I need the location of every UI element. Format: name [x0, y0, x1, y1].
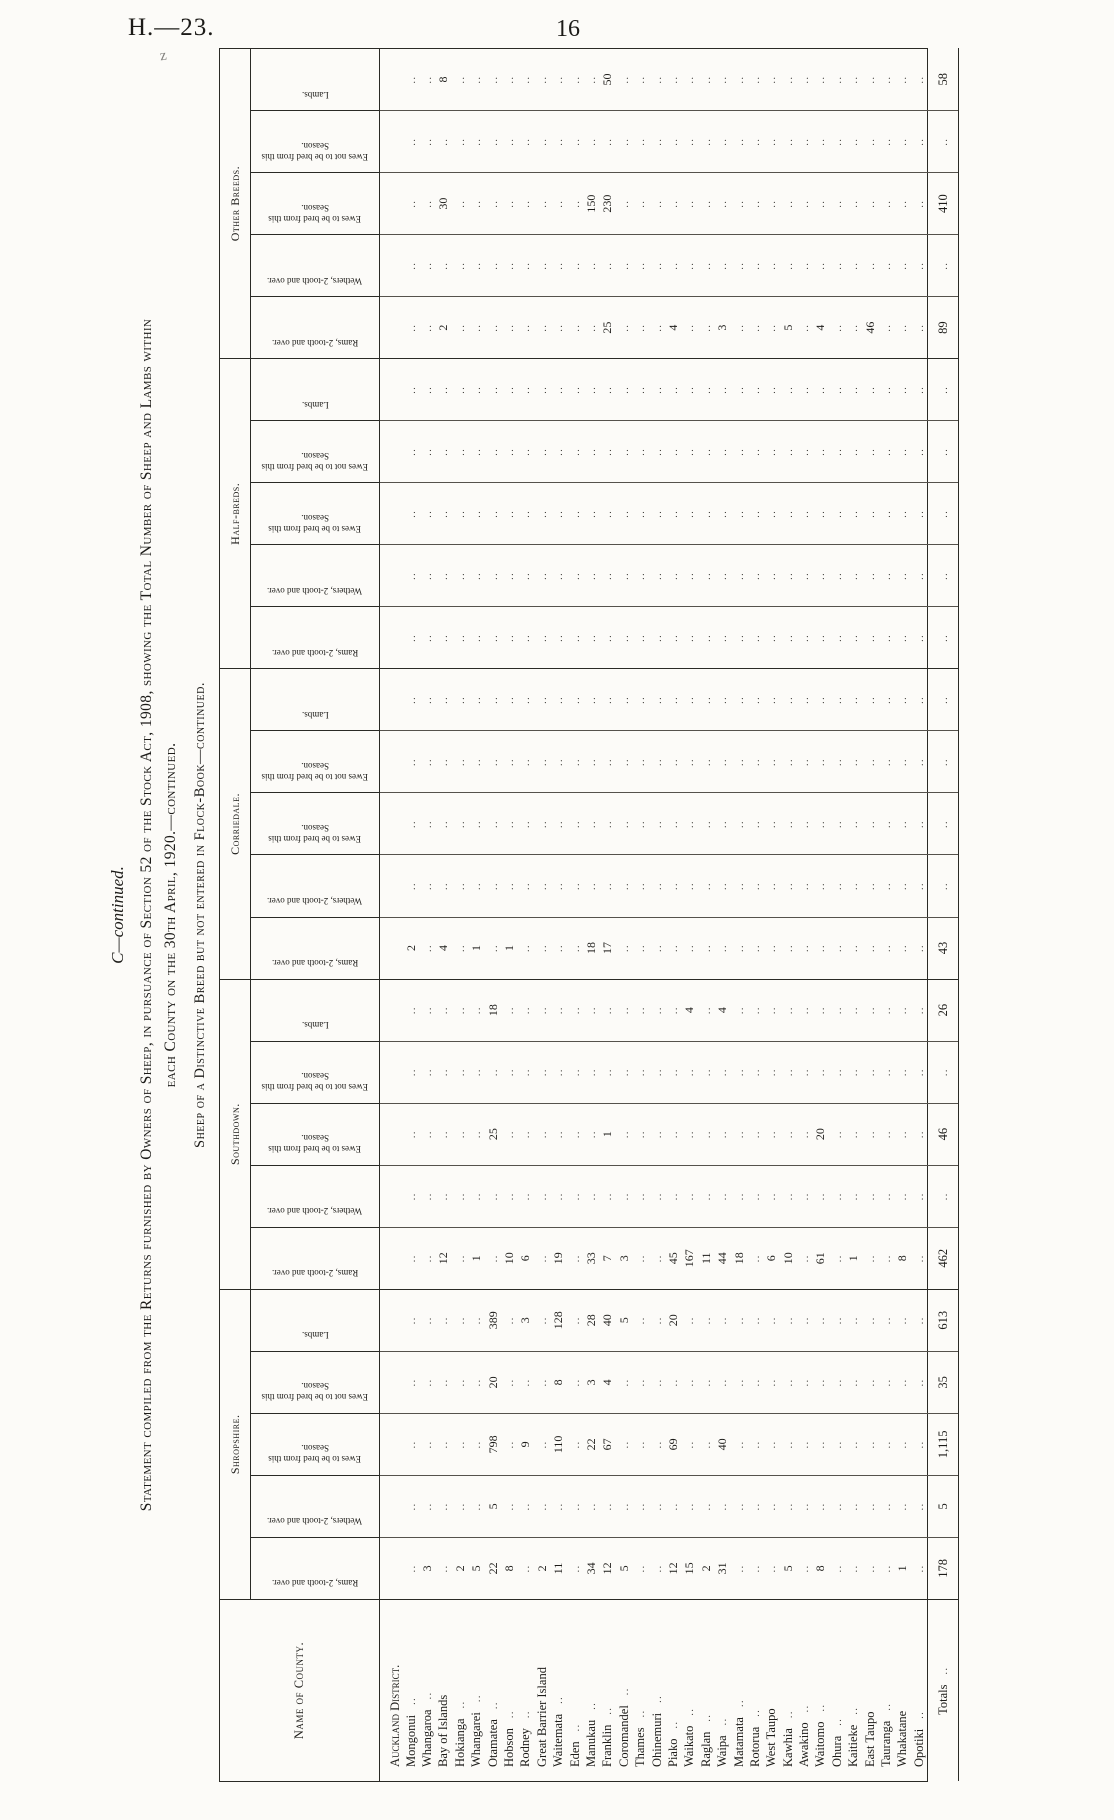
empty-cell: ..: [649, 607, 665, 669]
empty-cell: ..: [747, 979, 763, 1041]
empty-cell: ..: [403, 1413, 419, 1475]
empty-cell: ..: [731, 917, 747, 979]
empty-cell: ..: [764, 297, 780, 359]
empty-cell: ..: [895, 359, 911, 421]
rotated-header-text: Wethers, 2-tooth and over.: [267, 866, 362, 906]
empty-cell: ..: [846, 421, 862, 483]
empty-cell: ..: [665, 979, 681, 1041]
empty-cell: ..: [813, 1413, 829, 1475]
empty-cell: ..: [469, 607, 485, 669]
empty-cell: ..: [829, 1475, 845, 1537]
empty-cell: ..: [878, 1413, 894, 1475]
empty-cell: ..: [682, 1475, 698, 1537]
value-cell: 5: [616, 1537, 632, 1599]
empty-cell: ..: [911, 483, 927, 545]
empty-cell: ..: [600, 979, 616, 1041]
empty-cell: ..: [698, 1103, 714, 1165]
empty-cell: ..: [403, 1227, 419, 1289]
leader-dots: ..: [554, 1696, 565, 1714]
empty-cell: ..: [780, 607, 796, 669]
empty-cell: ..: [698, 855, 714, 917]
value-cell: 5: [928, 1475, 959, 1537]
empty-cell: ..: [813, 111, 829, 173]
empty-cell: ..: [632, 1227, 648, 1289]
empty-cell: ..: [796, 1475, 812, 1537]
empty-cell: ..: [714, 235, 730, 297]
empty-cell: ..: [895, 855, 911, 917]
value-cell: 35: [928, 1351, 959, 1413]
leader-dots: ..: [407, 1697, 418, 1715]
empty-cell: ..: [813, 1041, 829, 1103]
empty-cell: ..: [796, 1227, 812, 1289]
leader-dots: ..: [653, 1695, 664, 1713]
empty-cell: ..: [436, 793, 452, 855]
empty-cell: ..: [731, 1041, 747, 1103]
empty-cell: ..: [419, 111, 435, 173]
leader-dots: ..: [472, 1694, 483, 1712]
value-cell: 8: [501, 1537, 517, 1599]
empty-cell: ..: [534, 1227, 550, 1289]
empty-cell: ..: [862, 979, 878, 1041]
empty-cell: ..: [895, 1475, 911, 1537]
empty-cell: ..: [862, 1165, 878, 1227]
leader-dots: ..: [423, 1691, 434, 1709]
empty-cell: ..: [731, 111, 747, 173]
empty-cell: ..: [780, 1041, 796, 1103]
empty-cell: ..: [747, 1103, 763, 1165]
rotated-header-text: Ewes to be bred from this Season.: [255, 184, 375, 224]
empty-cell: ..: [780, 49, 796, 111]
empty-cell: ..: [649, 1165, 665, 1227]
empty-cell: ..: [551, 855, 567, 917]
value-cell: 2: [534, 1537, 550, 1599]
sub-column-header: Rams, 2-tooth and over.: [251, 917, 380, 979]
empty-cell: ..: [567, 1351, 583, 1413]
empty-cell: ..: [796, 1103, 812, 1165]
value-cell: 12: [436, 1227, 452, 1289]
empty-cell: ..: [501, 1413, 517, 1475]
empty-cell: ..: [911, 1165, 927, 1227]
empty-cell: ..: [501, 483, 517, 545]
empty-cell: ..: [600, 235, 616, 297]
empty-cell: ..: [878, 421, 894, 483]
empty-cell: ..: [469, 1413, 485, 1475]
empty-cell: ..: [403, 793, 419, 855]
empty-cell: ..: [698, 421, 714, 483]
empty-cell: ..: [436, 545, 452, 607]
empty-cell: ..: [600, 855, 616, 917]
blank-cell: [380, 297, 404, 359]
empty-cell: ..: [747, 421, 763, 483]
leader-dots: ..: [587, 1702, 598, 1720]
empty-cell: ..: [419, 235, 435, 297]
empty-cell: ..: [583, 49, 599, 111]
empty-cell: ..: [928, 1041, 959, 1103]
empty-cell: ..: [551, 917, 567, 979]
empty-cell: ..: [829, 421, 845, 483]
sub-column-header: Lambs.: [251, 669, 380, 731]
value-cell: 230: [600, 173, 616, 235]
empty-cell: ..: [501, 669, 517, 731]
county-name: Whangarei..: [469, 1599, 485, 1781]
empty-cell: ..: [616, 855, 632, 917]
empty-cell: ..: [436, 979, 452, 1041]
value-cell: 22: [485, 1537, 501, 1599]
empty-cell: ..: [403, 669, 419, 731]
empty-cell: ..: [698, 731, 714, 793]
leader-dots: ..: [915, 1711, 926, 1729]
rotated-header-text: Wethers, 2-tooth and over.: [267, 1176, 362, 1216]
county-name: Waikato..: [682, 1599, 698, 1781]
empty-cell: ..: [665, 793, 681, 855]
empty-cell: ..: [583, 545, 599, 607]
empty-cell: ..: [878, 1041, 894, 1103]
empty-cell: ..: [878, 173, 894, 235]
empty-cell: ..: [862, 1537, 878, 1599]
county-row: Kaitieke............1...................…: [846, 49, 862, 1782]
empty-cell: ..: [747, 1351, 763, 1413]
empty-cell: ..: [419, 483, 435, 545]
empty-cell: ..: [796, 49, 812, 111]
empty-cell: ..: [714, 731, 730, 793]
value-cell: 4: [600, 1351, 616, 1413]
empty-cell: ..: [911, 297, 927, 359]
blank-cell: [380, 1041, 404, 1103]
empty-cell: ..: [747, 731, 763, 793]
empty-cell: ..: [764, 483, 780, 545]
value-cell: 20: [813, 1103, 829, 1165]
county-name: Ohura..: [829, 1599, 845, 1781]
empty-cell: ..: [616, 483, 632, 545]
empty-cell: ..: [731, 545, 747, 607]
empty-cell: ..: [813, 235, 829, 297]
empty-cell: ..: [747, 235, 763, 297]
sub-column-header: Rams, 2-tooth and over.: [251, 607, 380, 669]
county-row: Hobson..8........10........1............…: [501, 49, 517, 1782]
county-row: Hokianga..2.............................…: [452, 49, 468, 1782]
empty-cell: ..: [714, 421, 730, 483]
empty-cell: ..: [419, 173, 435, 235]
rotated-header-text: Lambs.: [302, 680, 329, 720]
blank-cell: [380, 979, 404, 1041]
empty-cell: ..: [878, 855, 894, 917]
empty-cell: ..: [534, 235, 550, 297]
empty-cell: ..: [518, 917, 534, 979]
blank-cell: [380, 855, 404, 917]
empty-cell: ..: [551, 49, 567, 111]
empty-cell: ..: [911, 359, 927, 421]
empty-cell: ..: [698, 979, 714, 1041]
empty-cell: ..: [665, 731, 681, 793]
empty-cell: ..: [846, 1103, 862, 1165]
value-cell: 45: [665, 1227, 681, 1289]
empty-cell: ..: [501, 111, 517, 173]
empty-cell: ..: [567, 297, 583, 359]
empty-cell: ..: [485, 1165, 501, 1227]
value-cell: 1: [895, 1537, 911, 1599]
value-cell: 20: [665, 1289, 681, 1351]
empty-cell: ..: [682, 421, 698, 483]
sub-column-header: Ewes not to be bred from this Season.: [251, 421, 380, 483]
empty-cell: ..: [780, 421, 796, 483]
empty-cell: ..: [583, 731, 599, 793]
empty-cell: ..: [567, 1165, 583, 1227]
empty-cell: ..: [665, 1041, 681, 1103]
empty-cell: ..: [567, 173, 583, 235]
empty-cell: ..: [534, 49, 550, 111]
empty-cell: ..: [846, 49, 862, 111]
empty-cell: ..: [911, 235, 927, 297]
empty-cell: ..: [846, 1289, 862, 1351]
county-name: Opotiki..: [911, 1599, 927, 1781]
empty-cell: ..: [518, 359, 534, 421]
empty-cell: ..: [419, 669, 435, 731]
empty-cell: ..: [780, 917, 796, 979]
empty-cell: ..: [567, 855, 583, 917]
empty-cell: ..: [911, 855, 927, 917]
empty-cell: ..: [764, 979, 780, 1041]
empty-cell: ..: [534, 1103, 550, 1165]
empty-cell: ..: [469, 793, 485, 855]
empty-cell: ..: [452, 235, 468, 297]
empty-cell: ..: [780, 173, 796, 235]
blank-cell: [380, 1289, 404, 1351]
empty-cell: ..: [616, 1103, 632, 1165]
empty-cell: ..: [534, 297, 550, 359]
empty-cell: ..: [436, 1103, 452, 1165]
empty-cell: ..: [829, 979, 845, 1041]
empty-cell: ..: [747, 1537, 763, 1599]
empty-cell: ..: [436, 1413, 452, 1475]
empty-cell: ..: [419, 1289, 435, 1351]
empty-cell: ..: [665, 1103, 681, 1165]
county-row: Ohura...................................…: [829, 49, 845, 1782]
empty-cell: ..: [846, 607, 862, 669]
empty-cell: ..: [534, 483, 550, 545]
empty-cell: ..: [616, 1041, 632, 1103]
empty-cell: ..: [501, 545, 517, 607]
empty-cell: ..: [485, 235, 501, 297]
value-cell: 6: [518, 1227, 534, 1289]
leader-dots: ..: [571, 1723, 582, 1741]
empty-cell: ..: [551, 669, 567, 731]
empty-cell: ..: [878, 359, 894, 421]
empty-cell: ..: [518, 173, 534, 235]
empty-cell: ..: [403, 1041, 419, 1103]
empty-cell: ..: [403, 173, 419, 235]
empty-cell: ..: [862, 49, 878, 111]
county-name: Rodney..: [518, 1599, 534, 1781]
rotated-header-text: Rams, 2-tooth and over.: [272, 618, 358, 658]
county-row: East Taupo..............................…: [862, 49, 878, 1782]
value-cell: 31: [714, 1537, 730, 1599]
empty-cell: ..: [780, 669, 796, 731]
value-cell: 11: [551, 1537, 567, 1599]
empty-cell: ..: [485, 359, 501, 421]
empty-cell: ..: [714, 545, 730, 607]
empty-cell: ..: [911, 1537, 927, 1599]
empty-cell: ..: [419, 1413, 435, 1475]
empty-cell: ..: [796, 793, 812, 855]
empty-cell: ..: [928, 111, 959, 173]
empty-cell: ..: [567, 1413, 583, 1475]
empty-cell: ..: [583, 1165, 599, 1227]
value-cell: 410: [928, 173, 959, 235]
empty-cell: ..: [698, 483, 714, 545]
empty-cell: ..: [747, 1227, 763, 1289]
empty-cell: ..: [534, 1351, 550, 1413]
empty-cell: ..: [829, 1289, 845, 1351]
empty-cell: ..: [534, 1041, 550, 1103]
empty-cell: ..: [665, 49, 681, 111]
empty-cell: ..: [747, 669, 763, 731]
value-cell: 5: [485, 1475, 501, 1537]
blank-cell: [380, 917, 404, 979]
empty-cell: ..: [928, 669, 959, 731]
empty-cell: ..: [436, 111, 452, 173]
empty-cell: ..: [895, 1041, 911, 1103]
empty-cell: ..: [632, 917, 648, 979]
county-row: Waipa..31..40....44......4..............…: [714, 49, 730, 1782]
empty-cell: ..: [829, 917, 845, 979]
empty-cell: ..: [829, 1227, 845, 1289]
empty-cell: ..: [469, 669, 485, 731]
value-cell: 40: [600, 1289, 616, 1351]
empty-cell: ..: [714, 1041, 730, 1103]
value-cell: 46: [928, 1103, 959, 1165]
value-cell: 3: [419, 1537, 435, 1599]
empty-cell: ..: [764, 669, 780, 731]
empty-cell: ..: [764, 1475, 780, 1537]
empty-cell: ..: [878, 235, 894, 297]
rotated-header-text: Ewes not to be bred from this Season.: [255, 432, 375, 472]
empty-cell: ..: [829, 793, 845, 855]
empty-cell: ..: [583, 1041, 599, 1103]
empty-cell: ..: [485, 793, 501, 855]
empty-cell: ..: [501, 1041, 517, 1103]
county-row: Rotorua.................................…: [747, 49, 763, 1782]
empty-cell: ..: [501, 1351, 517, 1413]
empty-cell: ..: [813, 483, 829, 545]
empty-cell: ..: [911, 731, 927, 793]
empty-cell: ..: [682, 545, 698, 607]
empty-cell: ..: [747, 1165, 763, 1227]
empty-cell: ..: [452, 793, 468, 855]
empty-cell: ..: [665, 173, 681, 235]
empty-cell: ..: [895, 1103, 911, 1165]
rotated-header-text: Ewes to be bred from this Season.: [255, 494, 375, 534]
empty-cell: ..: [649, 855, 665, 917]
empty-cell: ..: [780, 855, 796, 917]
sub-column-header: Rams, 2-tooth and over.: [251, 1537, 380, 1599]
empty-cell: ..: [649, 359, 665, 421]
value-cell: 3: [616, 1227, 632, 1289]
empty-cell: ..: [731, 235, 747, 297]
county-row: Waitomo..8........61..20................…: [813, 49, 829, 1782]
empty-cell: ..: [534, 111, 550, 173]
empty-cell: ..: [698, 793, 714, 855]
empty-cell: ..: [501, 1103, 517, 1165]
empty-cell: ..: [518, 979, 534, 1041]
empty-cell: ..: [731, 1289, 747, 1351]
empty-cell: ..: [485, 917, 501, 979]
empty-cell: ..: [501, 1289, 517, 1351]
empty-cell: ..: [649, 235, 665, 297]
empty-cell: ..: [534, 979, 550, 1041]
empty-cell: ..: [813, 359, 829, 421]
empty-cell: ..: [518, 1041, 534, 1103]
empty-cell: ..: [469, 1351, 485, 1413]
empty-cell: ..: [534, 1289, 550, 1351]
empty-cell: ..: [649, 1103, 665, 1165]
sub-column-header: Ewes not to be bred from this Season.: [251, 1351, 380, 1413]
value-cell: 5: [469, 1537, 485, 1599]
value-cell: 110: [551, 1413, 567, 1475]
empty-cell: ..: [846, 669, 862, 731]
county-row: Eden....................................…: [567, 49, 583, 1782]
empty-cell: ..: [747, 49, 763, 111]
empty-cell: ..: [403, 1103, 419, 1165]
empty-cell: ..: [928, 607, 959, 669]
county-name: Waitomo..: [813, 1599, 829, 1781]
empty-cell: ..: [764, 545, 780, 607]
empty-cell: ..: [501, 731, 517, 793]
empty-cell: ..: [764, 1041, 780, 1103]
empty-cell: ..: [518, 421, 534, 483]
empty-cell: ..: [649, 1227, 665, 1289]
county-row: Opotiki.................................…: [911, 49, 927, 1782]
empty-cell: ..: [567, 793, 583, 855]
empty-cell: ..: [878, 1165, 894, 1227]
blank-cell: [380, 1537, 404, 1599]
empty-cell: ..: [714, 1165, 730, 1227]
value-cell: 50: [600, 49, 616, 111]
empty-cell: ..: [583, 793, 599, 855]
empty-cell: ..: [632, 855, 648, 917]
empty-cell: ..: [911, 49, 927, 111]
value-cell: 34: [583, 1537, 599, 1599]
empty-cell: ..: [682, 917, 698, 979]
empty-cell: ..: [846, 1165, 862, 1227]
empty-cell: ..: [846, 979, 862, 1041]
county-name: West Taupo: [764, 1599, 780, 1781]
empty-cell: ..: [796, 545, 812, 607]
empty-cell: ..: [714, 793, 730, 855]
empty-cell: ..: [419, 1475, 435, 1537]
empty-cell: ..: [698, 669, 714, 731]
empty-cell: ..: [862, 793, 878, 855]
rotated-header-text: Ewes not to be bred from this Season.: [255, 742, 375, 782]
empty-cell: ..: [780, 1165, 796, 1227]
empty-cell: ..: [616, 49, 632, 111]
value-cell: 5: [780, 1537, 796, 1599]
rotated-header-text: Rams, 2-tooth and over.: [272, 308, 358, 348]
empty-cell: ..: [665, 545, 681, 607]
empty-cell: ..: [747, 545, 763, 607]
empty-cell: ..: [649, 1413, 665, 1475]
county-row: Awakino.................................…: [796, 49, 812, 1782]
empty-cell: ..: [419, 731, 435, 793]
empty-cell: ..: [567, 607, 583, 669]
empty-cell: ..: [829, 1165, 845, 1227]
empty-cell: ..: [567, 1227, 583, 1289]
empty-cell: ..: [813, 731, 829, 793]
empty-cell: ..: [534, 1475, 550, 1537]
document-reference: H.—23.: [128, 14, 215, 42]
empty-cell: ..: [780, 1475, 796, 1537]
county-name: Hobson..: [501, 1599, 517, 1781]
county-row: Thames..................................…: [632, 49, 648, 1782]
